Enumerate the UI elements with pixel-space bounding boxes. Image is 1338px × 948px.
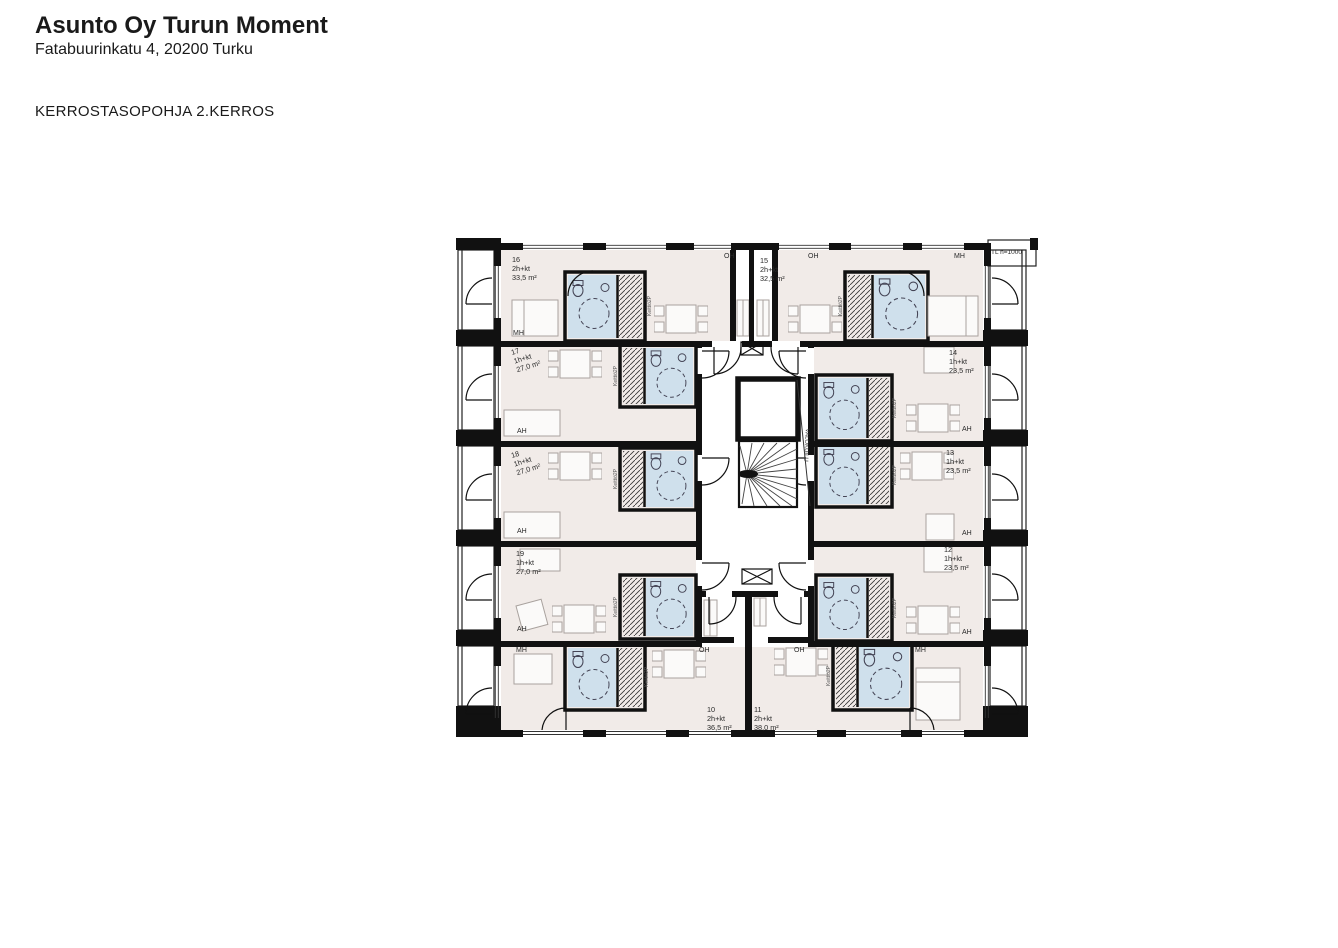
- apt-13-type: 1h+kt: [946, 457, 964, 466]
- apt-11-type: 2h+kt: [754, 714, 772, 723]
- apt-10-number: 10: [707, 705, 715, 714]
- elevator-shaft: [738, 379, 798, 439]
- room-label-mh-16: MH: [513, 330, 524, 337]
- room-label-mh-10: MH: [516, 647, 527, 654]
- wet-cell-apt13: [816, 443, 892, 507]
- kitchen-label-15: Keittiö2P: [838, 295, 844, 316]
- apt-10-type: 2h+kt: [707, 714, 725, 723]
- wet-cell-apt11: [833, 643, 912, 710]
- apt-12-area: 23,5 m²: [944, 563, 969, 572]
- room-label-ah-17: AH: [517, 428, 527, 435]
- bed: [916, 668, 960, 720]
- kitchen-label-17: Keittiö2P: [613, 365, 619, 386]
- room-label-ah-19: AH: [517, 626, 527, 633]
- kitchen-label-13: Keittiö2P: [892, 464, 898, 485]
- wet-cell-apt15: [845, 272, 928, 341]
- room-label-oh-15: OH: [808, 253, 819, 260]
- kitchen-label-12: Keittiö2P: [892, 597, 898, 618]
- wet-cell-apt14: [816, 375, 892, 441]
- wet-cell-apt12: [816, 575, 892, 641]
- wet-cell-apt10: [565, 645, 645, 710]
- apt-14-area: 23,5 m²: [949, 366, 974, 375]
- wet-cell-apt18: [620, 448, 696, 510]
- room-label-oh-11: OH: [794, 647, 805, 654]
- room-label-ah-12: AH: [962, 629, 972, 636]
- apt-15-area: 32,5 m²: [760, 274, 785, 283]
- kitchen-label-16: Keittiö2P: [647, 295, 653, 316]
- apt-11-area: 38,0 m²: [754, 723, 779, 732]
- bed: [926, 514, 954, 540]
- floor-plan-drawing: 16 2h+kt 33,5 m² 15 2h+kt 32,5 m² 14 1h+…: [0, 0, 1338, 948]
- apt-12-number: 12: [944, 545, 952, 554]
- apt-16-type: 2h+kt: [512, 264, 530, 273]
- light-well-label: VALOKUILU: [802, 428, 810, 462]
- kitchen-label-14: Keittiö2P: [892, 397, 898, 418]
- room-label-ah-18: AH: [517, 528, 527, 535]
- apt-13-area: 23,5 m²: [946, 466, 971, 475]
- kitchen-label-18: Keittiö2P: [613, 468, 619, 489]
- bed: [928, 296, 978, 336]
- apt-12-type: 1h+kt: [944, 554, 962, 563]
- apt-13-number: 13: [946, 448, 954, 457]
- apt-16-number: 16: [512, 255, 520, 264]
- kitchen-label-10: Keittiö2P: [644, 666, 650, 687]
- terrace-note: TL h=1000: [991, 249, 1022, 256]
- apt-16-area: 33,5 m²: [512, 273, 537, 282]
- bed: [514, 654, 552, 684]
- apt-19-area: 27,0 m²: [516, 567, 541, 576]
- wet-cell-apt19: [620, 575, 696, 639]
- apt-15-number: 15: [760, 256, 768, 265]
- core: [738, 342, 810, 584]
- apt-14-type: 1h+kt: [949, 357, 967, 366]
- stair-newel: [738, 470, 758, 478]
- apt-14-number: 14: [949, 348, 957, 357]
- door-mat: [742, 569, 772, 584]
- room-label-ah-14: AH: [962, 426, 972, 433]
- room-label-ah-13: AH: [962, 530, 972, 537]
- apt-19-type: 1h+kt: [516, 558, 534, 567]
- kitchen-label-11: Keittiö2P: [826, 665, 832, 686]
- kitchen-label-19: Keittiö2P: [613, 596, 619, 617]
- bed: [504, 410, 560, 436]
- room-label-mh-15: MH: [954, 253, 965, 260]
- apt-11-number: 11: [754, 705, 762, 714]
- wet-cell-apt17: [620, 345, 696, 407]
- apt-15-type: 2h+kt: [760, 265, 778, 274]
- apt-19-number: 19: [516, 549, 524, 558]
- bed: [504, 512, 560, 538]
- wet-cell-apt16: [565, 272, 645, 341]
- apt-10-area: 36,5 m²: [707, 723, 732, 732]
- room-label-oh-10: OH: [699, 647, 710, 654]
- room-label-mh-11: MH: [915, 647, 926, 654]
- floor-plan-page: Asunto Oy Turun Moment Fatabuurinkatu 4,…: [0, 0, 1338, 948]
- room-label-oh-16: OH: [724, 253, 735, 260]
